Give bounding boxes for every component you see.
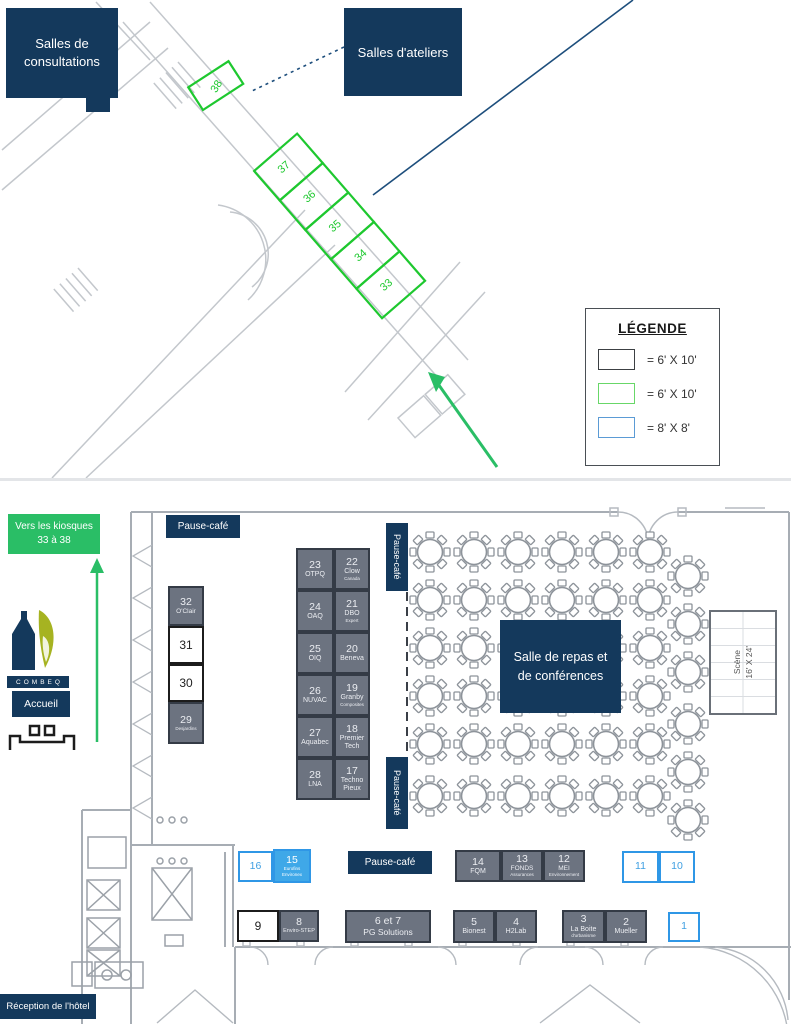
pause-cafe-south: Pause-café bbox=[348, 851, 432, 874]
kiosk-22: 22ClowCanada bbox=[334, 548, 370, 590]
kiosk-28: 28LNA bbox=[296, 758, 334, 800]
stage-name: Scène bbox=[732, 650, 742, 674]
dining-room-line2: de conférences bbox=[518, 667, 603, 686]
pause-cafe-text: Pause-café bbox=[392, 534, 402, 580]
workshops-room-label: Salles d'ateliers bbox=[344, 8, 462, 96]
kiosk-2: 2Mueller bbox=[605, 910, 647, 943]
kiosk-30: 30 bbox=[168, 664, 204, 702]
up-arrow-icon bbox=[90, 558, 104, 742]
section-divider bbox=[0, 478, 791, 481]
kiosk-10: 10 bbox=[659, 851, 695, 883]
kiosk-21: 21DBOExpert bbox=[334, 590, 370, 632]
kiosk-9: 9 bbox=[237, 910, 279, 942]
workshops-room-text: Salles d'ateliers bbox=[358, 45, 449, 60]
legend-row: = 6' X 10' bbox=[598, 383, 707, 404]
legend-label: = 6' X 10' bbox=[647, 353, 697, 367]
kiosk-31: 31 bbox=[168, 626, 204, 664]
west-door-swings bbox=[133, 545, 152, 819]
direction-sign-line2: 33 à 38 bbox=[37, 534, 70, 549]
kiosk-25: 25OIQ bbox=[296, 632, 334, 674]
legend-row: = 8' X 8' bbox=[598, 417, 707, 438]
kiosk-29: 29Desjardins bbox=[168, 702, 204, 744]
accueil-text: Accueil bbox=[24, 698, 58, 710]
legend-label: = 8' X 8' bbox=[647, 421, 690, 435]
kiosk-6-7: 6 et 7PG Solutions bbox=[345, 910, 431, 943]
kiosk-16: 16 bbox=[238, 851, 273, 882]
pause-cafe-text: Pause-café bbox=[178, 521, 229, 532]
pause-cafe-east-upper: Pause-café bbox=[386, 523, 408, 591]
pause-cafe-east-lower: Pause-café bbox=[386, 757, 408, 829]
brand-text: COMBEQ bbox=[16, 679, 63, 686]
legend-panel: LÉGENDE = 6' X 10' = 6' X 10' = 8' X 8' bbox=[585, 308, 720, 466]
kiosk-17: 17Techno Pieux bbox=[334, 758, 370, 800]
up-left-arrow-icon bbox=[428, 372, 497, 467]
svg-text:38: 38 bbox=[209, 78, 226, 95]
svg-text:35: 35 bbox=[327, 218, 344, 235]
kiosk-4: 4H2Lab bbox=[495, 910, 537, 943]
dining-room-label: Salle de repas et de conférences bbox=[500, 620, 621, 713]
pause-cafe-text: Pause-café bbox=[365, 857, 416, 868]
south-doors bbox=[157, 939, 788, 1024]
kiosk-12: 12MEIEnvironnement bbox=[543, 850, 585, 882]
legend-title: LÉGENDE bbox=[598, 321, 707, 336]
kiosk-19: 19GranbyComposites bbox=[334, 674, 370, 716]
legend-label: = 6' X 10' bbox=[647, 387, 697, 401]
kiosk-32: 32O'Clair bbox=[168, 586, 204, 626]
double-door-icon bbox=[610, 508, 765, 542]
kiosk-26: 26NUVAC bbox=[296, 674, 334, 716]
svg-text:37: 37 bbox=[276, 159, 293, 176]
consultations-room-text: Salles de consultations bbox=[14, 35, 110, 70]
kiosk-11: 11 bbox=[622, 851, 659, 883]
consultations-room-label: Salles de consultations bbox=[6, 8, 118, 98]
kiosk-5: 5Bionest bbox=[453, 910, 495, 943]
combeq-logo bbox=[10, 606, 60, 674]
pause-cafe-text: Pause-café bbox=[392, 770, 402, 816]
hotel-reception-label: Réception de l'hôtel bbox=[0, 994, 96, 1019]
kiosk-38: 38 bbox=[188, 61, 243, 110]
svg-text:36: 36 bbox=[301, 188, 318, 205]
kiosk-15: 15EurofinsEnvironex bbox=[273, 849, 311, 883]
blue-outline-box-swatch bbox=[598, 417, 635, 438]
kiosk-8: 8Enviro-STEP bbox=[279, 910, 319, 942]
kiosk-3: 3La Boited'urbanisme bbox=[562, 910, 605, 943]
hotel-reception-text: Réception de l'hôtel bbox=[6, 1001, 89, 1012]
svg-text:34: 34 bbox=[352, 247, 369, 264]
svg-text:33: 33 bbox=[378, 277, 395, 294]
kiosk-23: 23OTPQ bbox=[296, 548, 334, 590]
kiosk-20: 20Beneva bbox=[334, 632, 370, 674]
kiosk-27: 27Aquabec bbox=[296, 716, 334, 758]
green-outline-box-swatch bbox=[598, 383, 635, 404]
kiosk-13: 13FONDSAssurances bbox=[501, 850, 543, 882]
kiosk-24: 24OAQ bbox=[296, 590, 334, 632]
accueil-label: Accueil bbox=[12, 691, 70, 717]
kiosk-18: 18Premier Tech bbox=[334, 716, 370, 758]
stage: Scène 16' X 24' bbox=[709, 610, 777, 715]
stage-size: 16' X 24' bbox=[744, 646, 754, 679]
combeq-wordmark: COMBEQ bbox=[7, 676, 69, 688]
kiosk-14: 14FQM bbox=[455, 850, 501, 882]
legend-row: = 6' X 10' bbox=[598, 349, 707, 370]
direction-sign-line1: Vers les kiosques bbox=[15, 520, 93, 535]
dining-room-line1: Salle de repas et bbox=[514, 648, 608, 667]
direction-sign-kiosks-33-38: Vers les kiosques 33 à 38 bbox=[8, 514, 100, 554]
kiosk-1: 1 bbox=[668, 912, 700, 942]
registration-desk-icon bbox=[8, 722, 76, 754]
black-outline-box-swatch bbox=[598, 349, 635, 370]
pause-cafe-north: Pause-café bbox=[166, 515, 240, 538]
kiosk-strip-33-37: 37 36 35 34 33 bbox=[254, 134, 425, 319]
